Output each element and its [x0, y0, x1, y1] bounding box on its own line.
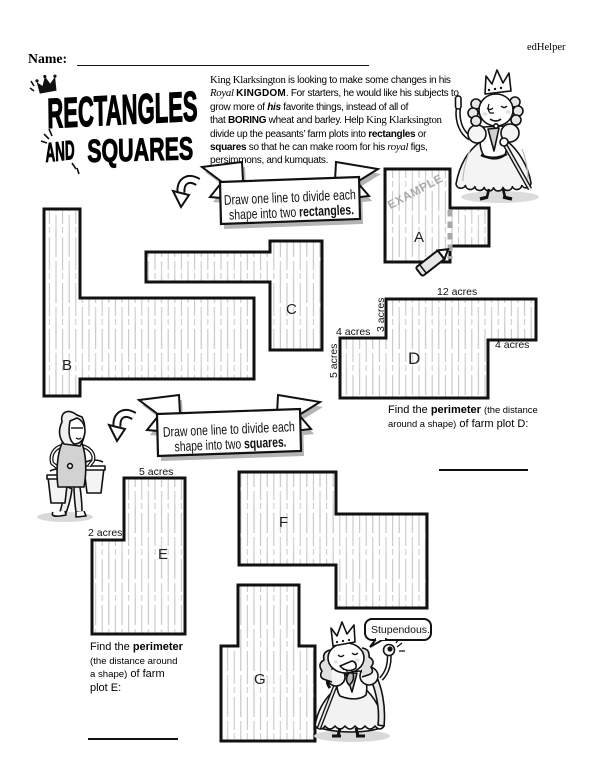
svg-text:4 acres: 4 acres [495, 339, 529, 351]
svg-text:Stupendous.: Stupendous. [371, 624, 430, 636]
svg-text:G: G [254, 671, 266, 688]
svg-text:D: D [408, 349, 420, 368]
svg-text:12 acres: 12 acres [437, 286, 477, 298]
svg-text:4 acres: 4 acres [336, 326, 370, 338]
svg-text:B: B [62, 357, 72, 374]
svg-text:5 acres: 5 acres [328, 344, 340, 378]
svg-text:F: F [279, 514, 288, 531]
svg-text:5 acres: 5 acres [139, 466, 173, 478]
svg-text:E: E [158, 546, 168, 563]
svg-text:A: A [414, 229, 424, 246]
svg-text:3 acres: 3 acres [375, 298, 387, 332]
svg-text:2 acres: 2 acres [88, 527, 122, 539]
svg-text:C: C [286, 301, 297, 318]
